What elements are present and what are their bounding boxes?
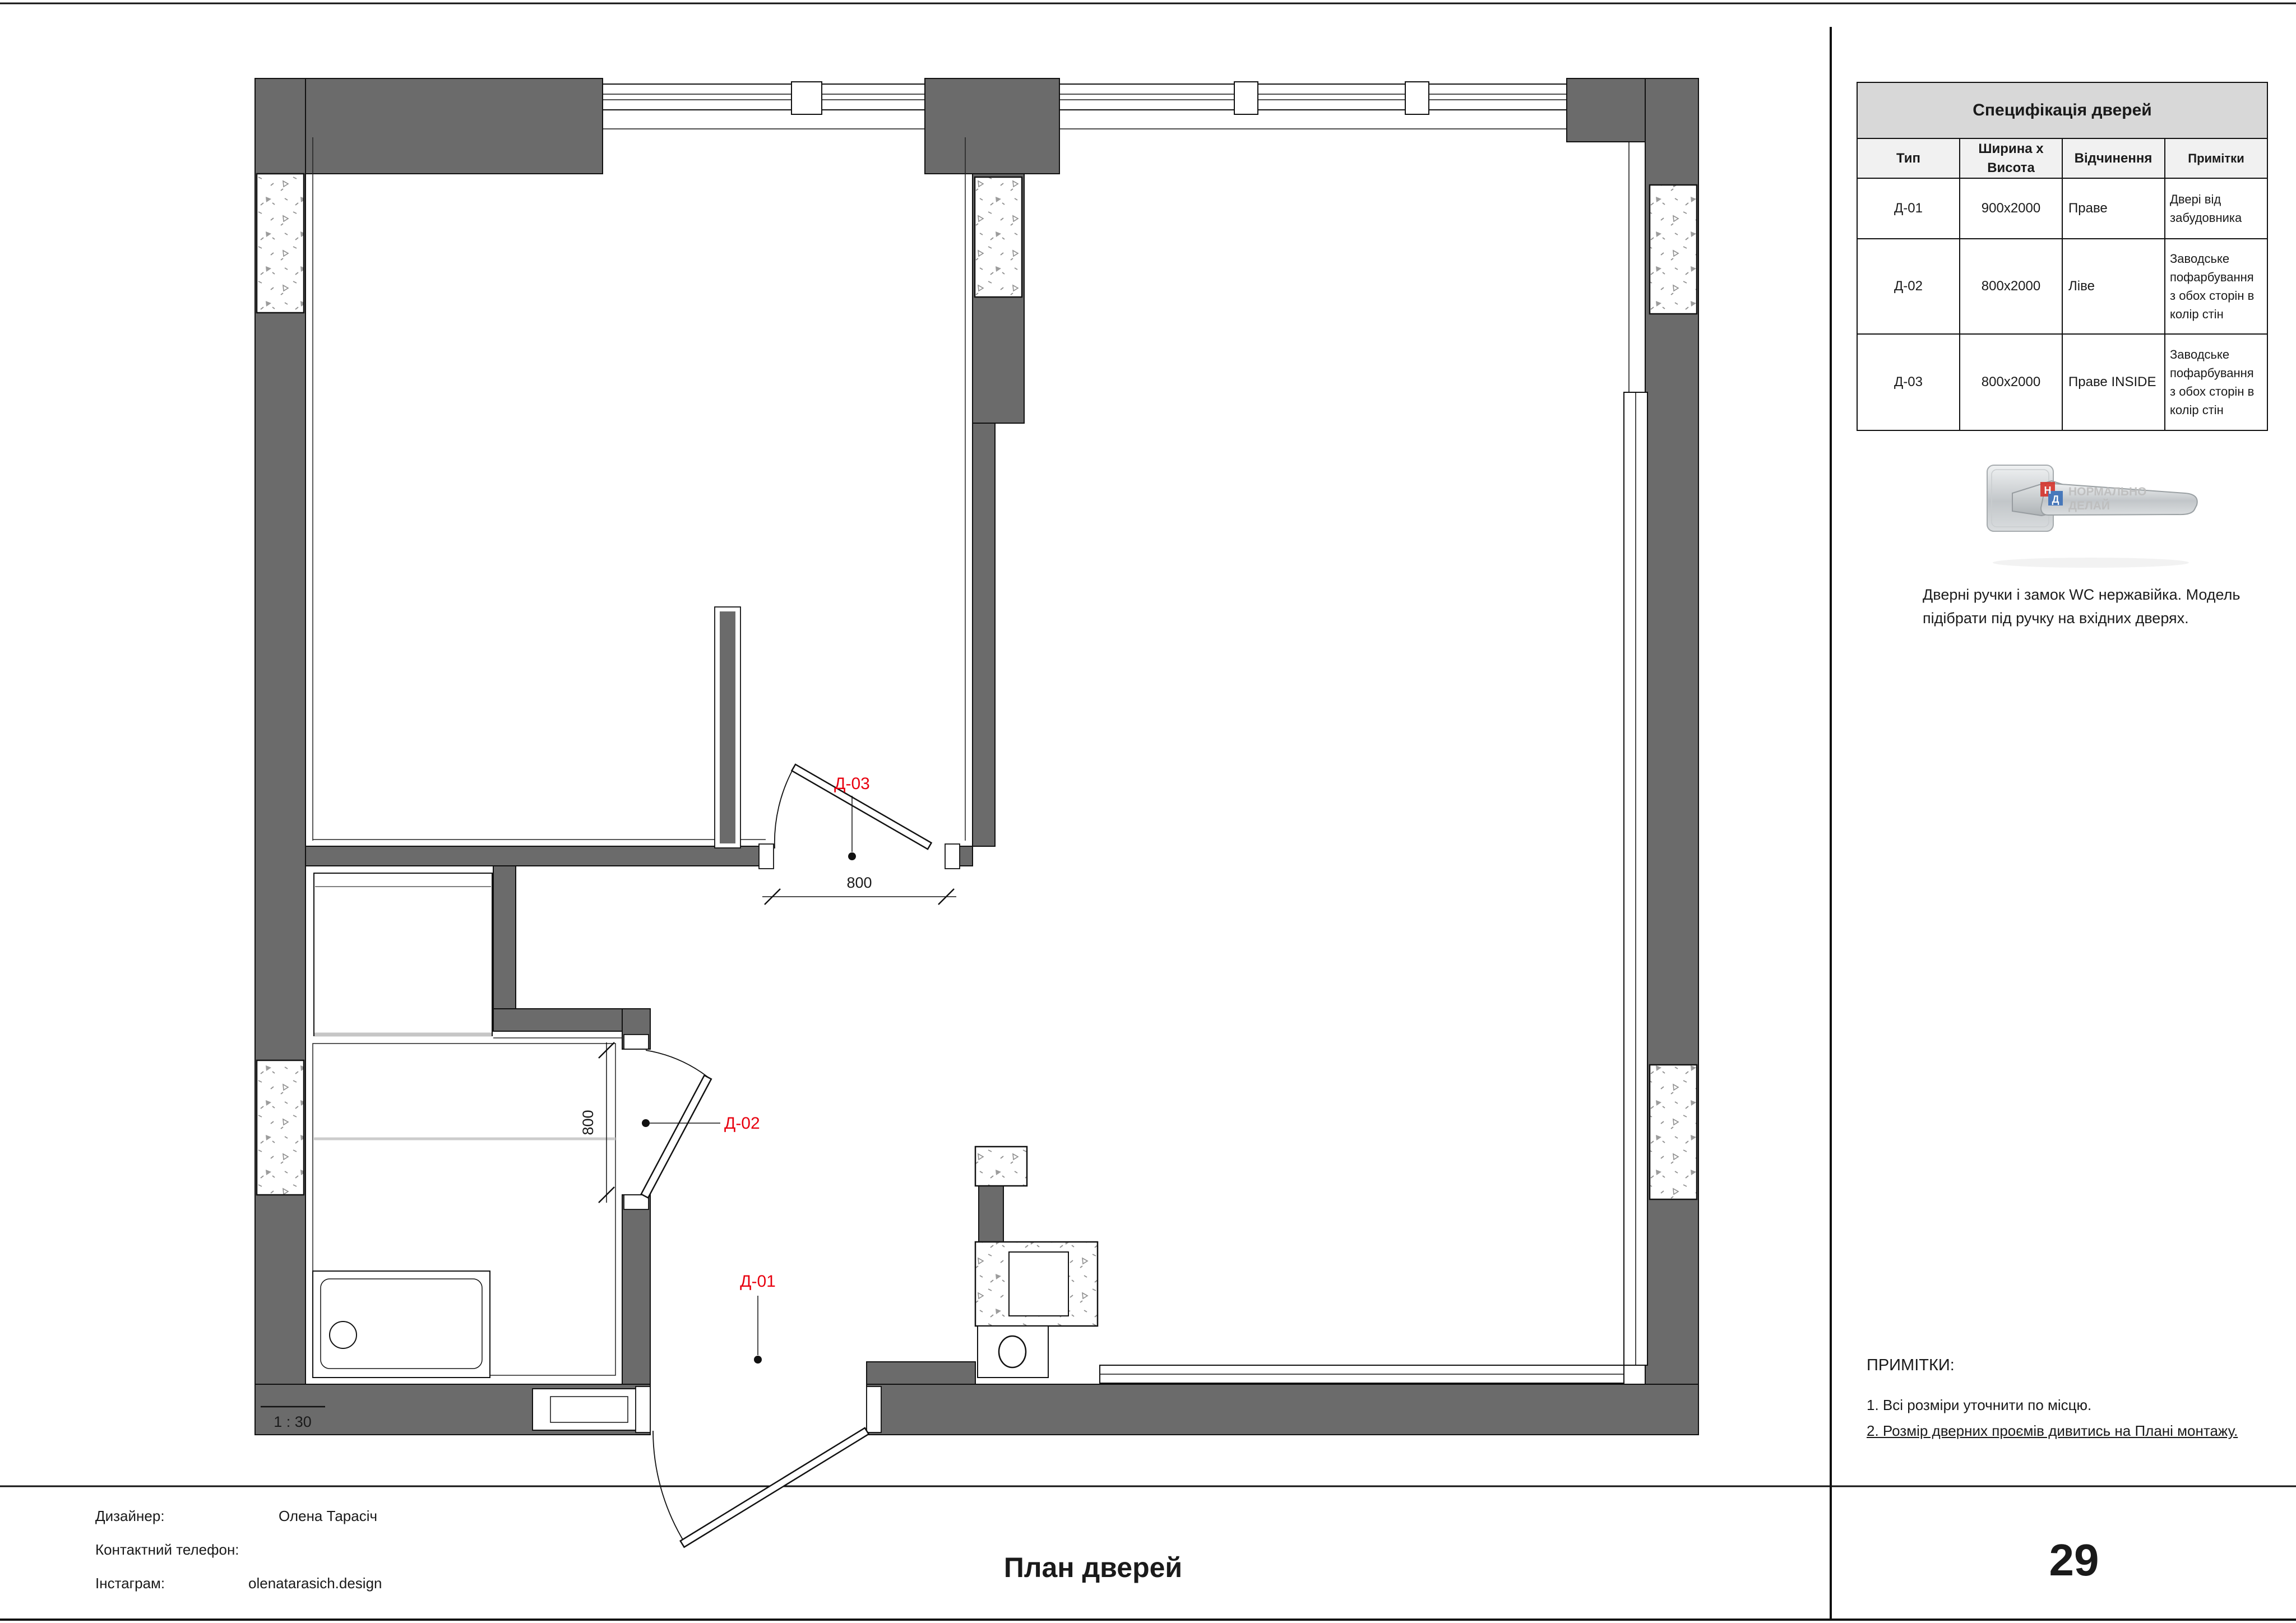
door-leaf [681,1428,869,1547]
window [1258,84,1405,110]
window [603,84,791,110]
spec-cell-type: Д-01 [1857,178,1960,239]
spec-header-type: Тип [1857,138,1960,178]
spec-cell-size: 900х2000 [1960,178,2062,239]
ventilation-box [978,1326,1048,1378]
door-d03: Д-03 800 [762,764,956,905]
concrete-column [257,1060,304,1195]
spec-table-title: Специфікація дверей [1857,82,2267,138]
door-d01: Д-01 [653,1272,869,1547]
designer-value: Олена Тарасіч [279,1508,377,1525]
door-handle-image: Н Д НОРМАЛЬНО ДЕЛАЙ [1987,465,2197,568]
spec-header-size: Ширина х Висота [1960,138,2062,178]
designer-label: Дизайнер: [95,1508,165,1525]
wall-d03-left [305,846,772,866]
concrete-column [975,1147,1027,1186]
drawing-sheet: Д-03 800 Д-02 800 [0,0,2296,1623]
wall-d02-bottom [622,1195,650,1384]
wall-top-center-block [925,78,1059,174]
window-mullion [791,82,822,114]
window-mullion [1234,82,1258,114]
spec-cell-size: 800х2000 [1960,334,2062,430]
wall-top-left-block [255,78,603,174]
door-label-d02: Д-02 [724,1114,760,1133]
window [822,84,925,110]
phone-label: Контактний телефон: [95,1541,239,1559]
window [1429,84,1567,110]
dimension-value: 800 [580,1110,596,1135]
watermark-text-2: ДЕЛАЙ [2068,499,2110,512]
instagram-value: olenatarasich.design [248,1575,382,1592]
spec-cell-type: Д-02 [1857,239,1960,334]
table-row: Д-01 900х2000 Праве Двері від забудовник… [1857,178,2267,239]
watermark-text-1: НОРМАЛЬНО [2068,485,2146,498]
spec-cell-notes: Заводське пофарбування з обох сторін в к… [2165,334,2267,430]
spec-cell-type: Д-03 [1857,334,1960,430]
spec-cell-notes: Двері від забудовника [2165,178,2267,239]
spec-cell-opening: Праве [2062,178,2165,239]
wall-bathroom-vertical [493,866,516,1031]
window [1059,84,1234,110]
spec-header-opening: Відчинення [2062,138,2165,178]
wardrobe [314,873,615,1139]
watermark-letter-d: Д [2052,494,2059,505]
door-leaf [641,1075,711,1198]
spec-cell-opening: Ліве [2062,239,2165,334]
table-row: Д-03 800х2000 Праве INSIDE Заводське поф… [1857,334,2267,430]
wall-entry-pier [867,1362,975,1384]
spec-header-notes: Примітки [2165,138,2267,178]
ventilation-duct-circle [999,1336,1026,1367]
windows-top-wall [603,82,1567,129]
handle-caption-line-2: підібрати під ручку на вхідних дверях. [1923,606,2259,630]
handle-caption-line-1: Дверні ручки і замок WC нержавійка. Моде… [1923,583,2259,606]
table-row: Д-02 800х2000 Ліве Заводське пофарбуванн… [1857,239,2267,334]
wall-bottom-right [867,1384,1698,1435]
door-swing-arc [646,1050,708,1077]
spec-cell-opening: Праве INSIDE [2062,334,2165,430]
scale-label: 1 : 30 [274,1413,312,1430]
spec-cell-notes: Заводське пофарбування з обох сторін в к… [2165,239,2267,334]
window-right-band [1100,142,1647,1383]
notes-title: ПРИМІТКИ: [1867,1356,1955,1375]
interior-finish-lines [313,137,965,1375]
concrete-column [257,174,304,313]
door-label-d01: Д-01 [740,1272,776,1291]
window-mullion [1405,82,1429,114]
partition-thin [715,607,740,848]
sheet-title: План дверей [701,1551,1485,1584]
door-d02: Д-02 800 [580,1042,760,1203]
door-label-d03: Д-03 [834,775,870,793]
concrete-column [1650,185,1697,314]
door-specification-table: Специфікація дверей Тип Ширина х Висота … [1857,82,2268,431]
door-tag-dot [848,852,856,860]
page-number: 29 [2018,1534,2130,1586]
bathtub [313,1271,490,1378]
concrete-column [1650,1065,1697,1199]
wall-shaft-stub [979,1186,1003,1242]
notes-item-1: 1. Всі розміри уточнити по місцю. [1867,1397,2091,1414]
door-tag-dot [642,1119,650,1127]
wall-bathroom-horizontal [493,1009,622,1031]
shaft-duct-opening [1009,1252,1068,1316]
dimension-value: 800 [846,874,872,891]
watermark-letter-n: Н [2044,485,2052,496]
wall-central-lower [973,423,995,846]
instagram-label: Інстаграм: [95,1575,165,1592]
door-swing-arc [775,768,794,848]
wall-niche [533,1389,645,1430]
spec-cell-size: 800х2000 [1960,239,2062,334]
dimension-d02: 800 [580,1042,614,1203]
bathtub-drain-circle [330,1321,357,1348]
dimension-d03: 800 [762,874,956,905]
notes-item-2: 2. Розмір дверних проємів дивитись на Пл… [1867,1422,2238,1440]
concrete-column [975,177,1022,297]
door-tag-dot [754,1356,762,1364]
